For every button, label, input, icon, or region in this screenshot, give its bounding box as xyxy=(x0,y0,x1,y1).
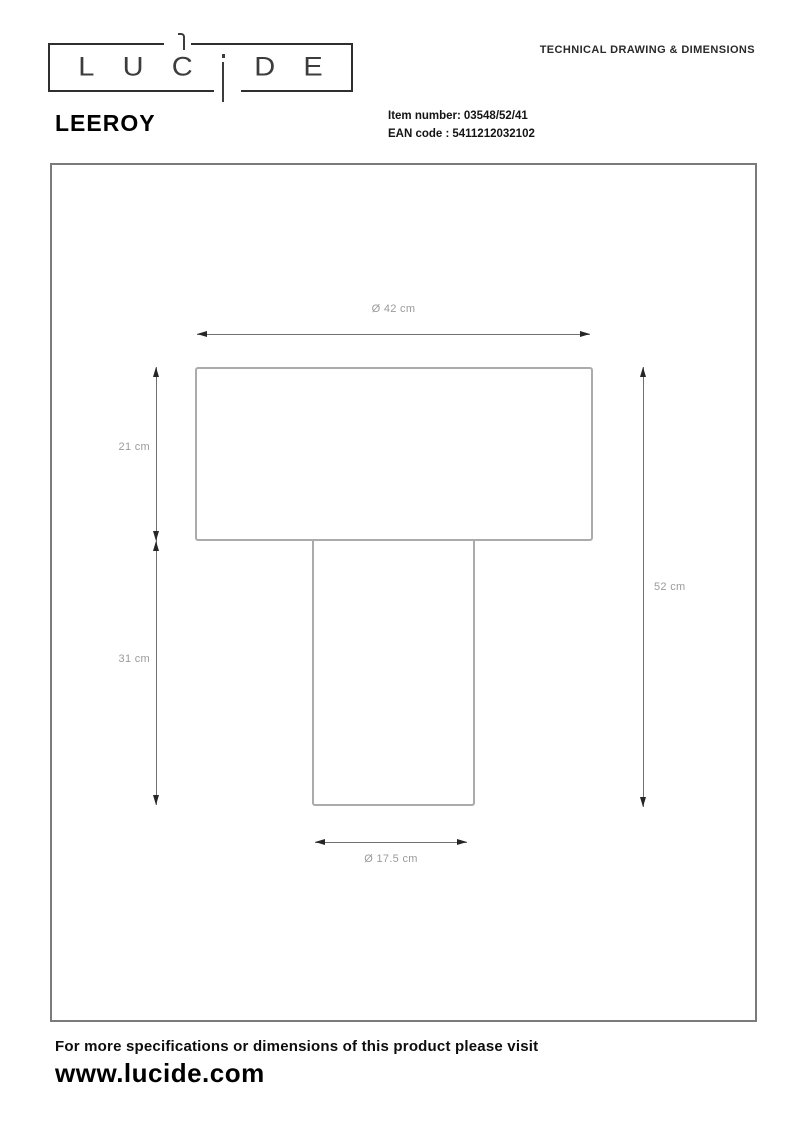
product-codes: Item number:03548/52/41 EAN code :541121… xyxy=(388,107,538,143)
base-height-label: 31 cm xyxy=(62,653,150,665)
logo-letter: C xyxy=(172,54,193,81)
ean-code-value: 5411212032102 xyxy=(452,128,535,140)
ean-code-label: EAN code : xyxy=(388,128,449,140)
drawing-frame: Ø 42 cm 21 cm 31 cm 52 cm Ø 17.5 cm xyxy=(50,163,757,1022)
lamp-shade-outline xyxy=(195,367,593,541)
website-link[interactable]: www.lucide.com xyxy=(55,1058,538,1089)
logo-i-dot xyxy=(222,54,225,58)
logo-letter: D xyxy=(254,54,275,81)
lamp-base-outline xyxy=(312,541,475,806)
product-name: LEEROY xyxy=(55,110,156,137)
foot-diameter-label: Ø 17.5 cm xyxy=(263,853,519,865)
lucide-logo: L U C D E xyxy=(48,43,353,92)
shade-diameter-label: Ø 42 cm xyxy=(197,303,590,315)
dimension-arrow-base-height xyxy=(156,541,157,805)
dimension-arrow-shade-diameter xyxy=(197,334,590,335)
footer: For more specifications or dimensions of… xyxy=(55,1038,538,1089)
footer-note: For more specifications or dimensions of… xyxy=(55,1038,538,1055)
item-number-value: 03548/52/41 xyxy=(464,110,528,122)
logo-letter: L xyxy=(78,54,94,81)
total-height-label: 52 cm xyxy=(654,581,685,593)
dimension-arrow-foot-diameter xyxy=(315,842,467,843)
shade-height-label: 21 cm xyxy=(62,441,150,453)
logo-letter-i xyxy=(221,45,226,90)
logo-letter: E xyxy=(303,54,322,81)
logo-i-stem xyxy=(222,62,224,102)
dimension-arrow-total-height xyxy=(643,367,644,807)
document-type-title: TECHNICAL DRAWING & DIMENSIONS xyxy=(540,44,755,56)
logo-border-gap-bottom xyxy=(214,90,241,92)
item-number-row: Item number:03548/52/41 xyxy=(388,107,538,125)
item-number-label: Item number: xyxy=(388,110,461,122)
dimension-arrow-shade-height xyxy=(156,367,157,541)
logo-letter: U xyxy=(123,54,144,81)
logo-c-accent xyxy=(178,33,185,50)
ean-code-row: EAN code :5411212032102 xyxy=(388,125,538,143)
